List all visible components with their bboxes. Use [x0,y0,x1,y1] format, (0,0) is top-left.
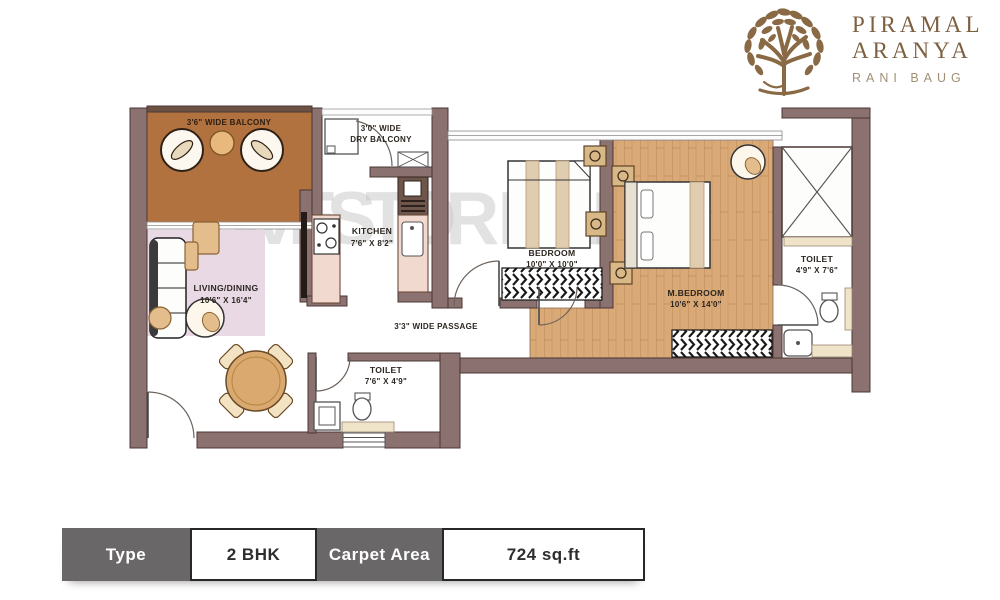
wall-segment [385,432,440,448]
kitchen-label: KITCHEN [352,226,392,236]
master-bedroom-label: M.BEDROOM [667,288,724,298]
carpet-area-label: Carpet Area [317,528,442,581]
wall-segment [197,432,343,448]
basin-counter [845,288,852,330]
type-label: Type [62,528,190,581]
wall-segment [312,108,322,225]
round-table [210,131,234,155]
washbasin-icon [314,402,340,430]
wc-icon [353,398,371,420]
master-bedroom-dims: 10'6" X 14'0" [670,300,722,309]
unit-summary-table: Type 2 BHK Carpet Area 724 sq.ft [62,528,645,581]
shaft-sill [784,237,852,246]
wc-icon [820,300,838,322]
open-door-leaf [301,212,307,298]
living-dining-dims: 10'6" X 16'4" [200,296,252,305]
wall-segment [773,325,782,358]
floor-plan-drawing: INVESTOR MART [0,0,1000,600]
type-value: 2 BHK [190,528,317,581]
round-side-table [149,307,171,329]
nightstand [584,146,606,166]
common-toilet-label: TOILET [370,365,403,375]
wall-segment [348,353,440,361]
balcony-label: 3'6" WIDE BALCONY [187,118,272,127]
dry-balcony-label-line2: DRY BALCONY [350,135,412,144]
wall-segment [398,292,432,302]
wall-segment [130,108,147,448]
bed [508,161,590,248]
bedroom-dims: 10'0" X 10'0" [526,260,578,269]
door-arc [778,285,818,325]
dry-balcony-label-line1: 3'0" WIDE [361,124,402,133]
pillow [641,190,653,218]
common-toilet-dims: 7'6" X 4'9" [365,377,407,386]
stove-icon [314,219,339,254]
dining-set [218,343,294,419]
floor-plan-page: PIRAMAL ARANYA RANI BAUG INVESTOR MART [0,0,1000,600]
wall-segment [460,358,852,373]
carpet-area-value: 724 sq.ft [442,528,645,581]
kitchen-dims: 7'6" X 8'2" [351,239,393,248]
dining-table [226,351,286,411]
door-arc [316,357,350,391]
wall-segment [370,167,432,177]
door-arc [148,392,194,438]
master-toilet-label: TOILET [801,254,834,264]
toilet-counter [342,422,394,432]
wall-segment [773,147,782,285]
balcony-rail [147,106,312,112]
side-table [185,242,198,270]
dry-balcony-window [322,109,432,115]
wall-segment [852,108,870,392]
wall-segment [440,353,460,448]
passage-label: 3'3" WIDE PASSAGE [394,322,478,331]
bedroom-label: BEDROOM [529,248,576,258]
wall-segment [782,108,870,118]
nightstand [586,212,606,236]
duct-shaft [782,147,852,246]
wall-segment [432,108,448,308]
pillow [641,232,653,260]
entrance-steps [343,433,385,447]
living-dining-label: LIVING/DINING [193,283,258,293]
master-toilet-dims: 4'9" X 7'6" [796,266,838,275]
